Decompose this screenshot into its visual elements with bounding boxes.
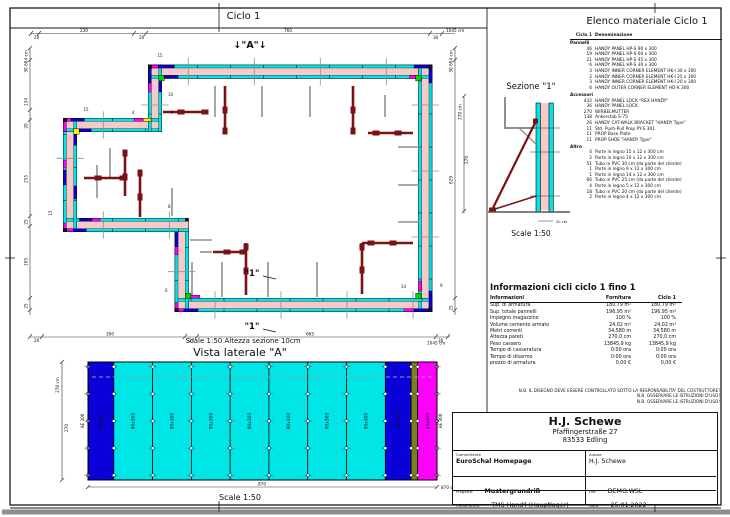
prop-foot: [123, 150, 128, 157]
svg-text:10: 10: [168, 92, 174, 97]
svg-text:30: 30: [449, 67, 454, 73]
field-autore: Autore H.J. Schewe: [586, 451, 716, 477]
svg-text:629: 629: [449, 176, 454, 184]
vista-panel-label: 90x300: [208, 413, 214, 430]
panel-lock: [229, 419, 232, 422]
panel-lock: [267, 392, 270, 395]
vista-panel-label: 90x300: [325, 413, 331, 430]
svg-text:14: 14: [401, 284, 407, 289]
panel-lock: [345, 392, 348, 395]
svg-text:195: 195: [24, 258, 29, 266]
prop-foot: [178, 110, 185, 115]
panel-lock: [151, 419, 154, 422]
panel-lock: [306, 419, 309, 422]
field-committente: Committente EuroSchal Homepage: [453, 451, 586, 477]
prop-foot: [224, 250, 231, 255]
panel-lock: [112, 419, 115, 422]
cycle-info-table: Informazioni cicli ciclo 1 fino 1 Inform…: [490, 283, 682, 367]
edge-label-left: AE 300: [80, 413, 85, 428]
panel-lock: [190, 447, 193, 450]
company-name: H.J. Schewe: [453, 413, 717, 428]
nb-notes: N.B. IL DISEGNO DEVE ESSERE CONTROLLATO …: [420, 388, 720, 404]
prop-foot: [368, 241, 375, 246]
prop-foot: [390, 241, 397, 246]
sheet-shadow: [2, 510, 730, 515]
title-block: H.J. Schewe Pfaffingerstraße 27 83533 Ed…: [452, 412, 718, 505]
svg-text:30: 30: [433, 35, 439, 40]
company-address2: 83533 Edling: [453, 436, 717, 444]
elenco-title: Elenco materiale Ciclo 1: [572, 16, 722, 27]
svg-text:270 cm: 270 cm: [55, 377, 60, 393]
nb-note: N.B. OSSERVARE LE ISTRUZIONI D'USO!: [420, 399, 720, 404]
panel-lock: [384, 447, 387, 450]
section-marker-1: "1": [245, 269, 260, 279]
field-casseratura: Casseratura: TMS Hand'l (Hauptlager): [453, 491, 586, 504]
panel-lock: [416, 419, 419, 422]
svg-text:25: 25: [449, 305, 454, 311]
svg-text:270: 270: [64, 424, 69, 432]
svg-text:270: 270: [464, 156, 469, 164]
prop-foot: [360, 267, 365, 274]
section-marker-1: "1": [245, 322, 260, 332]
svg-text:15: 15: [83, 107, 89, 112]
prop-foot: [244, 244, 249, 251]
panel-lock: [306, 392, 309, 395]
svg-text:230: 230: [80, 28, 88, 33]
panel-lock: [384, 419, 387, 422]
svg-text:664 cm: 664 cm: [449, 50, 454, 66]
sezione-dim: 20 cm: [556, 220, 568, 224]
panel-lock: [410, 365, 413, 368]
svg-text:20: 20: [34, 35, 40, 40]
panel-lock: [229, 447, 232, 450]
panel-lock: [410, 474, 413, 477]
svg-text:1045 cm: 1045 cm: [427, 341, 445, 346]
panel-lock: [229, 365, 232, 368]
vista-panel-label: 90x300: [131, 413, 137, 430]
field-progetto: Progetto: Mustergrundriß: [453, 477, 586, 491]
material-list-header: Ciclo 1 Denominazione: [570, 33, 722, 40]
svg-text:15: 15: [157, 53, 163, 58]
material-list: Ciclo 1 Denominazione Pannelli46HANDY PA…: [570, 33, 722, 201]
prop-foot: [138, 170, 143, 177]
panel-lock: [306, 365, 309, 368]
section-marker-a: ↓"A"↓: [233, 40, 266, 51]
panel-lock: [410, 392, 413, 395]
svg-text:25: 25: [24, 219, 29, 225]
svg-text:4: 4: [132, 110, 135, 115]
panel-lock: [151, 447, 154, 450]
svg-text:665: 665: [306, 332, 314, 337]
panel-lock: [416, 365, 419, 368]
panel-lock: [345, 474, 348, 477]
panel-lock: [151, 392, 154, 395]
field-file: File: DEMO.WSL: [586, 477, 716, 491]
panel-lock: [267, 365, 270, 368]
svg-text:20: 20: [34, 338, 40, 343]
prop-foot: [223, 107, 228, 114]
panel-lock: [229, 392, 232, 395]
panel-lock: [416, 447, 419, 450]
cycle-info-title: Informazioni cicli ciclo 1 fino 1: [490, 283, 682, 293]
svg-text:134: 134: [24, 98, 29, 106]
panel-lock: [267, 474, 270, 477]
prop-foot: [95, 176, 102, 181]
panel-lock: [410, 447, 413, 450]
svg-text:20: 20: [139, 35, 145, 40]
svg-text:870: 870: [258, 482, 266, 487]
panel-lock: [306, 474, 309, 477]
panel-lock: [384, 365, 387, 368]
svg-text:30: 30: [24, 67, 29, 73]
material-row: 11PROP SHOE "HANDY Type": [570, 138, 722, 144]
prop-foot: [138, 194, 143, 201]
material-row: 6HANDY OUTER CORNER ELEMENT HD-K 300: [570, 86, 722, 92]
panel-lock: [190, 365, 193, 368]
panel-lock: [306, 447, 309, 450]
prop-foot: [373, 131, 380, 136]
panel-lock: [345, 365, 348, 368]
svg-text:760: 760: [284, 28, 292, 33]
panel-lock: [112, 365, 115, 368]
panel-lock: [410, 419, 413, 422]
panel-lock: [190, 474, 193, 477]
company-address1: Pfaffingerstraße 27: [453, 428, 717, 436]
svg-text:270 cm: 270 cm: [458, 104, 463, 120]
panel-lock: [190, 419, 193, 422]
panel-lock: [384, 474, 387, 477]
panel-lock: [151, 474, 154, 477]
material-row: 2Parte in legno 4 x 12 x 300 cm: [570, 195, 722, 201]
prop-foot: [351, 128, 356, 135]
plan-title: Ciclo 1: [0, 11, 487, 22]
panel-lock: [190, 392, 193, 395]
svg-text:1045 cm: 1045 cm: [446, 28, 464, 33]
svg-text:300: 300: [106, 332, 114, 337]
svg-text:25: 25: [24, 303, 29, 309]
svg-text:664 cm: 664 cm: [24, 50, 29, 66]
panel-lock: [384, 392, 387, 395]
prop-foot: [202, 110, 209, 115]
title-block-company: H.J. Schewe Pfaffingerstraße 27 83533 Ed…: [453, 413, 717, 451]
vista-scale: Scale 1:50: [219, 493, 261, 502]
panel-lock: [267, 419, 270, 422]
panel-lock: [345, 419, 348, 422]
prop-foot: [351, 107, 356, 114]
vista-panel-label: 90x300: [247, 413, 253, 430]
panel-lock: [151, 365, 154, 368]
prop-foot: [223, 128, 228, 135]
vista-title: Vista laterale "A": [193, 346, 287, 359]
prop-foot: [360, 244, 365, 251]
plan-scale-note: Scale 1:50 Altezza sezione 10cm: [185, 337, 300, 345]
field-data: Data: 25.01.2022: [586, 491, 716, 504]
vista-panel-label: 90x300: [286, 413, 292, 430]
svg-text:255: 255: [24, 175, 29, 183]
cycle-info-row: prezzo di armatura0,00 €0,00 €: [490, 361, 682, 367]
vista-panel-label: 90x300: [170, 413, 176, 430]
svg-text:15: 15: [48, 210, 53, 216]
prop-foot: [123, 174, 128, 181]
panel-lock: [416, 474, 419, 477]
vista-laterale-view: Vista laterale "A" 60x30090x30090x30090x…: [55, 346, 457, 502]
edge-label-right: AE 300: [438, 413, 443, 428]
vista-panel-label: 60x300: [98, 413, 104, 430]
vista-panel-label: 45x300: [425, 413, 431, 430]
sezione-scale: Scale 1:50: [511, 229, 551, 238]
svg-text:20: 20: [24, 123, 29, 129]
panel-lock: [345, 447, 348, 450]
panel-lock: [112, 474, 115, 477]
prop-foot: [395, 131, 402, 136]
vista-panel-label: 90x300: [363, 413, 369, 430]
sezione-title: Sezione "1": [506, 82, 555, 92]
panel-lock: [112, 447, 115, 450]
panel-lock: [267, 447, 270, 450]
panel-lock: [112, 392, 115, 395]
vista-panel-label: 60x300: [396, 413, 402, 430]
panel-lock: [229, 474, 232, 477]
panel-lock: [416, 392, 419, 395]
